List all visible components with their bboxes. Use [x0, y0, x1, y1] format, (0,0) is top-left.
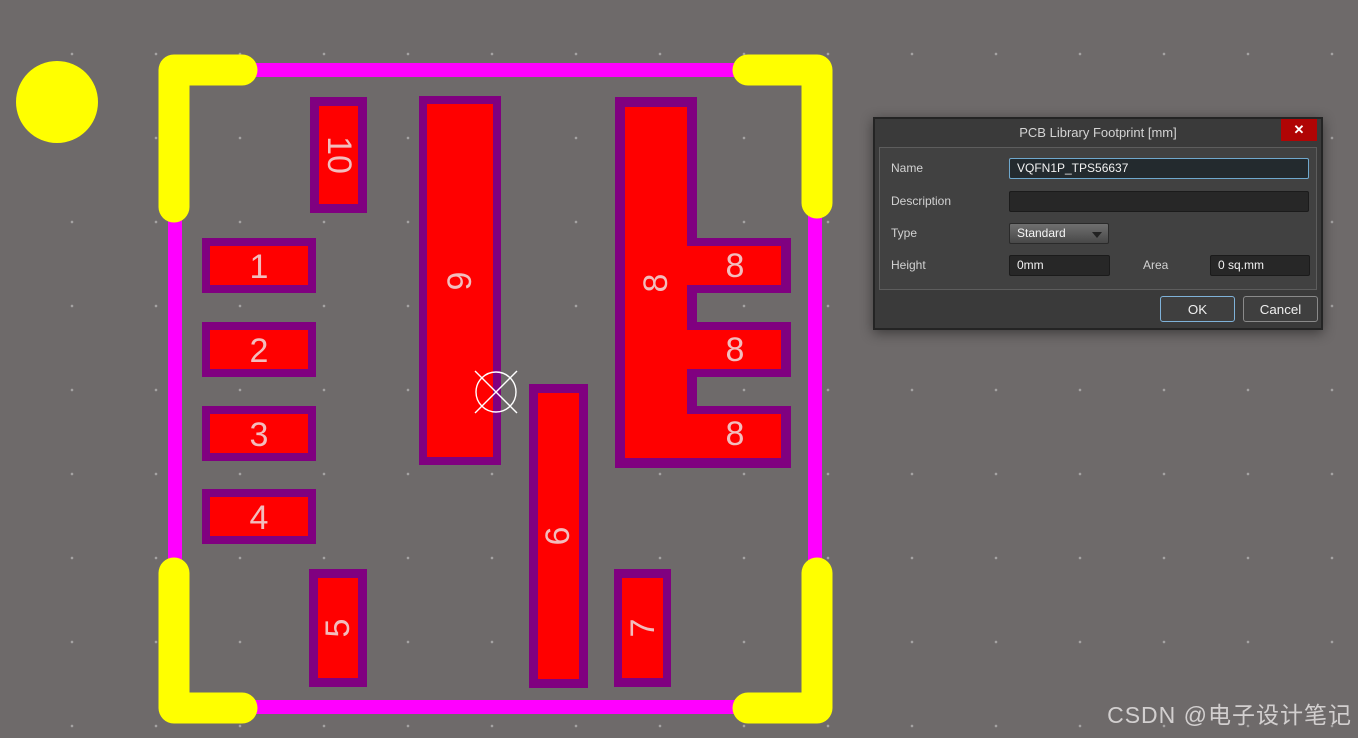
area-input[interactable]: 0 sq.mm	[1210, 255, 1310, 276]
pad-8-number: 8	[637, 274, 675, 293]
area-label: Area	[1143, 258, 1168, 272]
pad-7[interactable]: 7	[614, 569, 671, 687]
footprint-artwork: 10 1 2 3 4	[0, 0, 1358, 738]
pad-8-finger1-number: 8	[726, 247, 745, 285]
pcb-editor-canvas[interactable]: 10 1 2 3 4	[0, 0, 1358, 738]
pad-6[interactable]: 6	[529, 384, 588, 688]
description-input[interactable]	[1009, 191, 1309, 212]
pad-8-finger2-number: 8	[726, 331, 745, 369]
pad-3-number: 3	[250, 416, 269, 454]
corner-bottom-right[interactable]	[748, 573, 817, 708]
type-selected-value: Standard	[1017, 226, 1066, 240]
cancel-button[interactable]: Cancel	[1243, 296, 1318, 322]
pad-4[interactable]: 4	[202, 489, 316, 544]
fiducial-pad-circle[interactable]	[16, 61, 98, 143]
corner-top-left[interactable]	[174, 70, 242, 207]
name-input[interactable]: VQFN1P_TPS56637	[1009, 158, 1309, 179]
name-label: Name	[891, 161, 923, 175]
pad-6-number: 6	[539, 527, 577, 546]
pad-3[interactable]: 3	[202, 406, 316, 461]
pad-9[interactable]: 9	[419, 96, 501, 465]
corner-top-right[interactable]	[748, 70, 817, 203]
pad-10[interactable]: 10	[310, 97, 367, 213]
description-label: Description	[891, 194, 951, 208]
ok-button[interactable]: OK	[1160, 296, 1235, 322]
type-dropdown[interactable]: Standard	[1009, 223, 1109, 244]
height-input[interactable]: 0mm	[1009, 255, 1110, 276]
pad-2-number: 2	[250, 332, 269, 370]
dropdown-arrow-icon	[1092, 232, 1102, 238]
pad-9-number: 9	[441, 272, 479, 291]
footprint-properties-dialog: PCB Library Footprint [mm] ✕ Name VQFN1P…	[873, 117, 1323, 330]
close-icon: ✕	[1294, 122, 1305, 138]
height-label: Height	[891, 258, 926, 272]
pad-10-number: 10	[320, 136, 358, 174]
pad-5[interactable]: 5	[309, 569, 367, 687]
dialog-fields-panel: Name VQFN1P_TPS56637 Description Type St…	[879, 147, 1317, 290]
pad-4-number: 4	[250, 499, 269, 537]
type-label: Type	[891, 226, 917, 240]
pad-5-number: 5	[319, 619, 357, 638]
csdn-watermark: CSDN @电子设计笔记	[1107, 696, 1352, 730]
dialog-title: PCB Library Footprint [mm]	[875, 119, 1321, 147]
pad-7-number: 7	[624, 619, 662, 638]
corner-bottom-left[interactable]	[174, 573, 242, 708]
close-button[interactable]: ✕	[1281, 119, 1317, 141]
pad-2[interactable]: 2	[202, 322, 316, 377]
pad-1-number: 1	[250, 248, 269, 286]
pad-8-finger3-number: 8	[726, 415, 745, 453]
pad-8[interactable]: 8 8 8 8	[615, 97, 791, 468]
pad-1[interactable]: 1	[202, 238, 316, 293]
